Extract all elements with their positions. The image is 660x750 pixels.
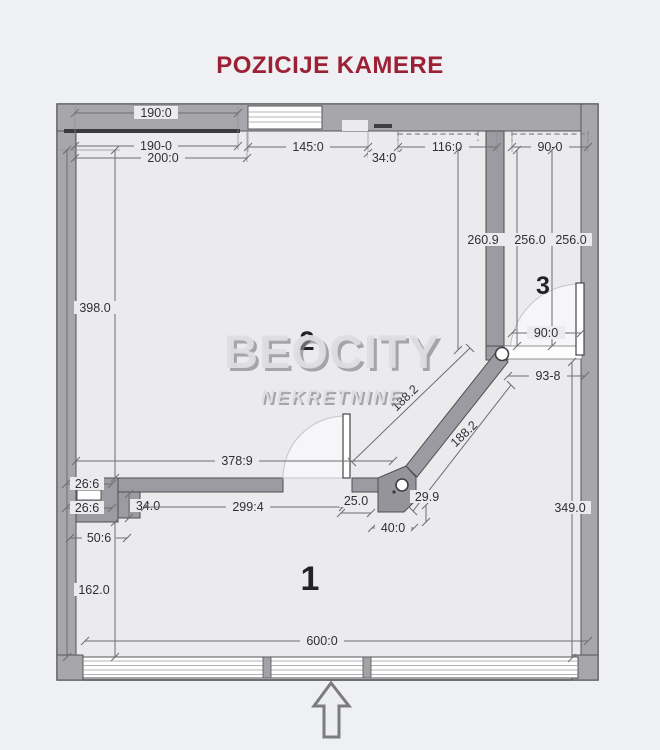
svg-text:398.0: 398.0: [79, 301, 110, 315]
svg-text:90:0: 90:0: [534, 326, 558, 340]
svg-text:600:0: 600:0: [306, 634, 337, 648]
svg-text:145:0: 145:0: [292, 140, 323, 154]
door-leaf: [576, 283, 584, 355]
svg-text:256.0: 256.0: [555, 233, 586, 247]
room-label-1: 1: [301, 560, 320, 598]
camera-marker-2: [396, 479, 408, 491]
svg-text:25.0: 25.0: [344, 494, 368, 508]
svg-text:26:6: 26:6: [75, 477, 99, 491]
svg-text:162.0: 162.0: [78, 583, 109, 597]
room-label-3: 3: [536, 272, 550, 300]
svg-text:NEKRETNINE: NEKRETNINE: [261, 387, 403, 407]
svg-text:260.9: 260.9: [467, 233, 498, 247]
point-marker: [392, 490, 395, 493]
svg-text:34.0: 34.0: [136, 499, 160, 513]
svg-text:349.0: 349.0: [554, 501, 585, 515]
svg-text:40:0: 40:0: [381, 521, 405, 535]
svg-text:200:0: 200:0: [147, 151, 178, 165]
svg-text:256.0: 256.0: [514, 233, 545, 247]
window-mullion: [363, 657, 371, 678]
entrance-arrow-icon: [314, 683, 349, 737]
camera-marker-1: [496, 348, 509, 361]
window-mullion: [263, 657, 271, 678]
svg-text:378:9: 378:9: [221, 454, 252, 468]
svg-text:299:4: 299:4: [232, 500, 263, 514]
svg-text:BEOCITY: BEOCITY: [224, 325, 440, 378]
svg-text:93-8: 93-8: [535, 369, 560, 383]
svg-text:34:0: 34:0: [372, 151, 396, 165]
top-window: [248, 106, 322, 129]
svg-text:26:6: 26:6: [75, 501, 99, 515]
door-leaf: [343, 414, 350, 478]
pier-slot: [77, 490, 101, 500]
floor-plan: 1 2 3 190:0 190-0 200:0 145:0 34:0 116:0…: [0, 0, 660, 750]
beam-line: [64, 129, 240, 133]
svg-text:190:0: 190:0: [140, 106, 171, 120]
svg-text:50:6: 50:6: [87, 531, 111, 545]
dim-40-0: 40:0: [368, 521, 418, 535]
svg-text:29.9: 29.9: [415, 490, 439, 504]
bottom-window: [83, 657, 578, 678]
